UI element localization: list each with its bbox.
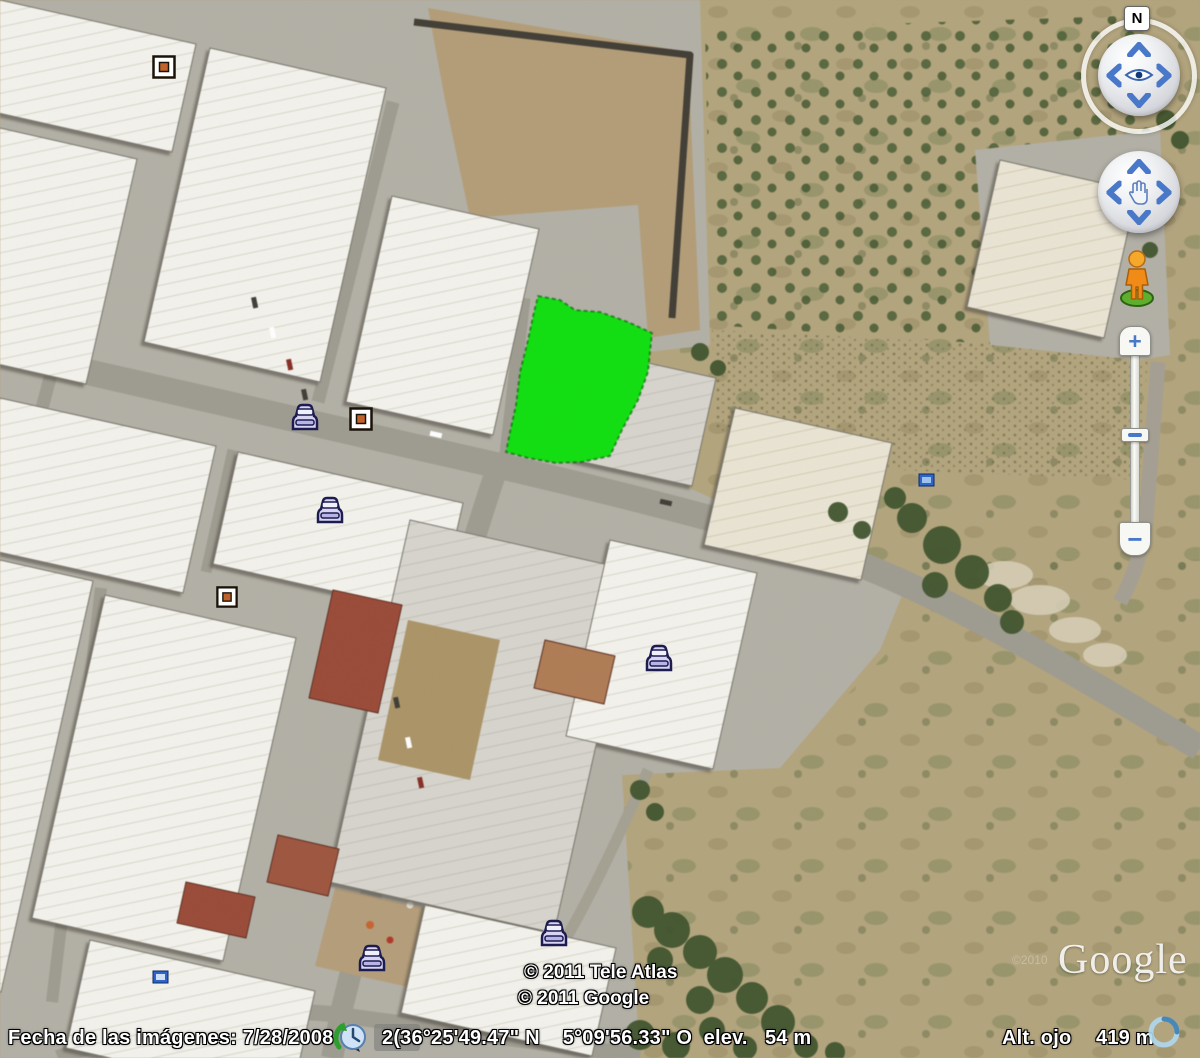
elevation-value: 54 m xyxy=(765,1027,811,1049)
zoom-handle-dash xyxy=(1128,433,1142,437)
coordinates-value: 2(36°25'49.47" N 5°09'56.33" O xyxy=(382,1027,692,1049)
pegman-icon[interactable] xyxy=(1116,248,1158,313)
copyright-google: © 2011 Google xyxy=(518,988,649,1010)
imagery-date-value: 7/28/2008 xyxy=(243,1027,334,1049)
zoom-handle[interactable] xyxy=(1121,428,1149,442)
look-right-arrow-icon[interactable] xyxy=(1157,64,1172,88)
elevation-label: elev. xyxy=(704,1027,748,1049)
zoom-out-button[interactable]: − xyxy=(1119,522,1151,556)
look-up-arrow-icon[interactable] xyxy=(1127,42,1151,57)
car-poi-icon[interactable] xyxy=(313,496,347,529)
copyright-tele-atlas: © 2011 Tele Atlas xyxy=(524,962,677,984)
move-right-arrow-icon[interactable] xyxy=(1157,181,1172,205)
north-label: N xyxy=(1132,10,1143,27)
move-joystick[interactable] xyxy=(1098,151,1180,233)
google-earth-viewport: N + − © 2011 Tele Atlas © 2011 Google ©2… xyxy=(0,0,1200,1058)
north-indicator[interactable]: N xyxy=(1124,6,1150,31)
coordinates-readout: 2(36°25'49.47" N 5°09'56.33" O elev. 54 … xyxy=(382,1027,811,1050)
eye-icon xyxy=(1124,67,1154,83)
image-grain xyxy=(0,0,1200,1058)
square-poi-icon[interactable] xyxy=(349,407,373,436)
sign-poi-icon[interactable] xyxy=(152,970,169,989)
look-down-arrow-icon[interactable] xyxy=(1127,93,1151,108)
car-poi-icon[interactable] xyxy=(355,944,389,977)
look-left-arrow-icon[interactable] xyxy=(1107,64,1122,88)
car-poi-icon[interactable] xyxy=(642,644,676,677)
car-poi-icon[interactable] xyxy=(537,919,571,952)
zoom-out-label: − xyxy=(1127,524,1142,555)
eye-altitude-label: Alt. ojo xyxy=(1002,1027,1071,1050)
imagery-date-label: Fecha de las imágenes: xyxy=(8,1027,237,1049)
zoom-track[interactable] xyxy=(1130,348,1140,538)
zoom-slider[interactable]: + − xyxy=(1119,326,1151,556)
faint-watermark: ©2010 xyxy=(1012,953,1048,967)
google-logo: Google xyxy=(1058,936,1188,984)
historical-imagery-clock-icon[interactable] xyxy=(330,1020,372,1058)
streaming-icon xyxy=(1146,1014,1182,1055)
pan-hand-icon xyxy=(1127,179,1151,205)
move-up-arrow-icon[interactable] xyxy=(1127,159,1151,174)
zoom-in-button[interactable]: + xyxy=(1119,326,1151,356)
imagery-date: Fecha de las imágenes: 7/28/2008 xyxy=(8,1027,334,1050)
car-poi-icon[interactable] xyxy=(288,403,322,436)
look-joystick[interactable] xyxy=(1098,34,1180,116)
move-left-arrow-icon[interactable] xyxy=(1107,181,1122,205)
move-down-arrow-icon[interactable] xyxy=(1127,210,1151,225)
square-poi-icon[interactable] xyxy=(152,55,176,84)
satellite-map[interactable] xyxy=(0,0,1200,1058)
sign-poi-icon[interactable] xyxy=(918,473,935,492)
square-poi-icon[interactable] xyxy=(216,586,238,613)
